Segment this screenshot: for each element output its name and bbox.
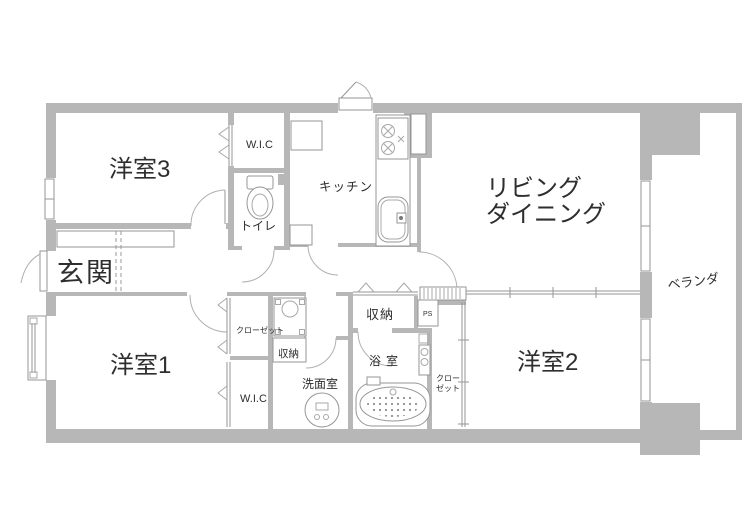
label-wic-upper: W.I.C [246,139,273,151]
door-kitchen [308,245,338,275]
wash-basin [305,393,339,427]
label-living-dining-line2: ダイニング [486,201,606,228]
door-room3 [191,190,225,226]
kitchen-counter [376,115,410,246]
bifold-storage-hall [353,283,418,295]
door-room1 [190,295,227,332]
refrigerator-space [411,114,426,154]
duct-block [278,174,288,185]
veranda-outer-wall [736,113,742,440]
kitchen-cabinet-north [291,121,322,150]
door-washroom [306,338,336,368]
label-bathroom: 浴室 [369,353,403,368]
door-living [419,252,457,290]
label-western-room-2: 洋室2 [517,349,578,376]
label-closet-room1: クローゼット [236,325,284,335]
window-living-veranda [641,181,650,271]
label-storage-hall: 収納 [366,307,394,322]
sliding-closet-room2 [458,302,469,427]
floorplan-canvas: 洋室3 W.I.C トイレ キッチン リビング ダイニング 玄関 洋室1 クロー… [0,0,755,530]
label-storage-washroom: 収納 [278,347,299,360]
pillar-bottom-right [640,403,700,455]
label-washroom: 洗面室 [302,376,338,391]
floorplan-drawing: 洋室3 W.I.C トイレ キッチン リビング ダイニング 玄関 洋室1 クロー… [0,0,755,530]
window-room3-left [45,179,54,219]
label-closet-room2-line1: クロー [436,374,460,383]
kitchen-cabinet-south [290,225,312,245]
bifold-wic-lower [218,362,230,427]
door-entrance [21,251,47,291]
door-toilet [242,250,274,282]
bifold-wic-upper [219,125,232,166]
door-service-top [339,82,372,110]
toilet-fixture [247,176,273,219]
label-living-dining-line1: リビング [486,175,582,202]
label-toilet: トイレ [240,219,276,233]
label-western-room-1: 洋室1 [110,352,171,379]
label-veranda: ベランダ [666,270,720,292]
bay-window-room1 [28,316,56,380]
bathtub [356,377,430,426]
pillar-top-right [640,113,700,155]
window-room2-veranda [641,319,650,401]
label-kitchen: キッチン [319,180,373,194]
label-pipe-space: PS [423,311,433,318]
bifold-closet-room1 [218,298,230,354]
label-closet-room2-line2: ゼット [436,383,460,393]
meter-box-hatch [420,287,466,300]
sliding-door-living-room2 [466,287,640,298]
label-wic-lower: W.I.C [240,393,267,405]
label-western-room-3: 洋室3 [109,156,170,183]
label-entrance: 玄関 [57,258,115,288]
